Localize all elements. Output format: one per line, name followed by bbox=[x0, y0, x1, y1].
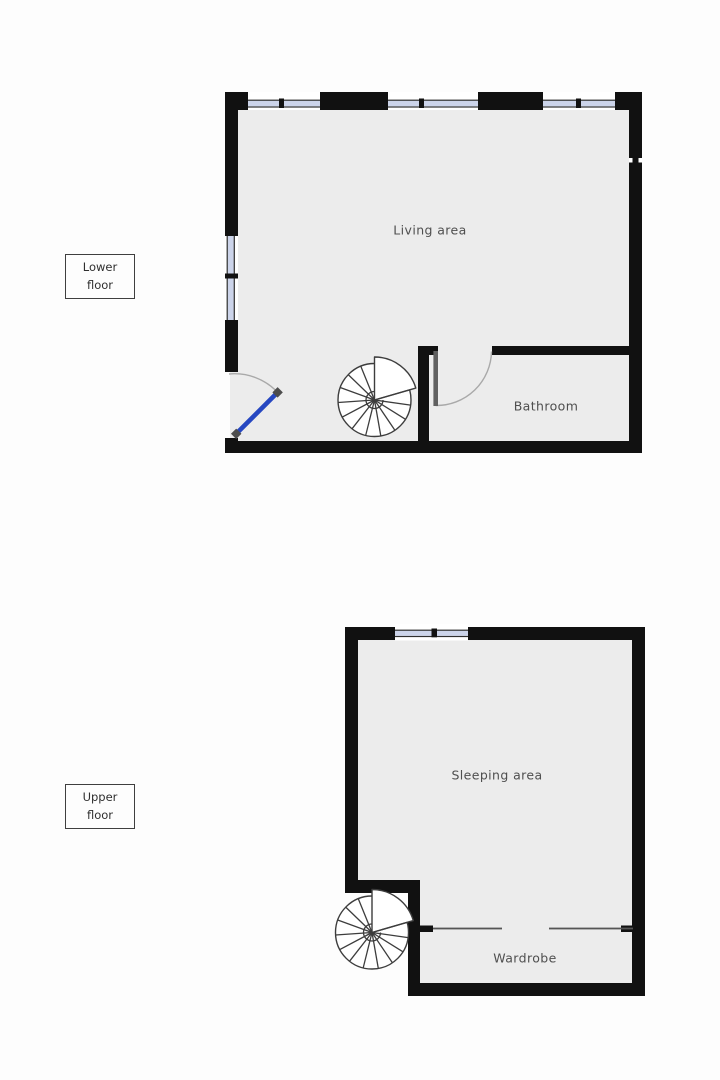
floorplan-page: Living area Bathroom Sleeping area Wardr… bbox=[0, 0, 720, 1080]
floor-tag-line: floor bbox=[87, 277, 113, 294]
lower-floor-plan bbox=[225, 92, 642, 453]
floor-tag-line: Upper bbox=[83, 789, 118, 806]
window-mullion bbox=[576, 99, 581, 109]
floor-tag-line: floor bbox=[87, 807, 113, 824]
room-label-living-area: Living area bbox=[393, 223, 466, 238]
window-mullion bbox=[225, 274, 238, 279]
window-top-3 bbox=[543, 92, 615, 110]
upper-floor-plan bbox=[336, 624, 646, 996]
window-top-2 bbox=[388, 92, 478, 110]
room-label-sleeping-area: Sleeping area bbox=[451, 768, 542, 783]
window-mullion bbox=[432, 629, 438, 638]
spiral-staircase-upper bbox=[336, 890, 414, 970]
window-mullion bbox=[419, 99, 424, 109]
room-label-wardrobe: Wardrobe bbox=[493, 951, 556, 966]
floor-tag-lower: Lower floor bbox=[65, 254, 135, 299]
window-upper bbox=[395, 624, 468, 641]
room-label-bathroom: Bathroom bbox=[514, 399, 579, 414]
floorplan-svg bbox=[0, 0, 720, 1080]
floor-tag-upper: Upper floor bbox=[65, 784, 135, 829]
floor-tag-line: Lower bbox=[83, 259, 117, 276]
bathroom-door-leaf bbox=[433, 351, 438, 406]
window-mullion bbox=[279, 99, 284, 109]
lower-floor-fill bbox=[230, 100, 635, 448]
window-left bbox=[225, 236, 238, 320]
window-top-1 bbox=[248, 92, 320, 110]
